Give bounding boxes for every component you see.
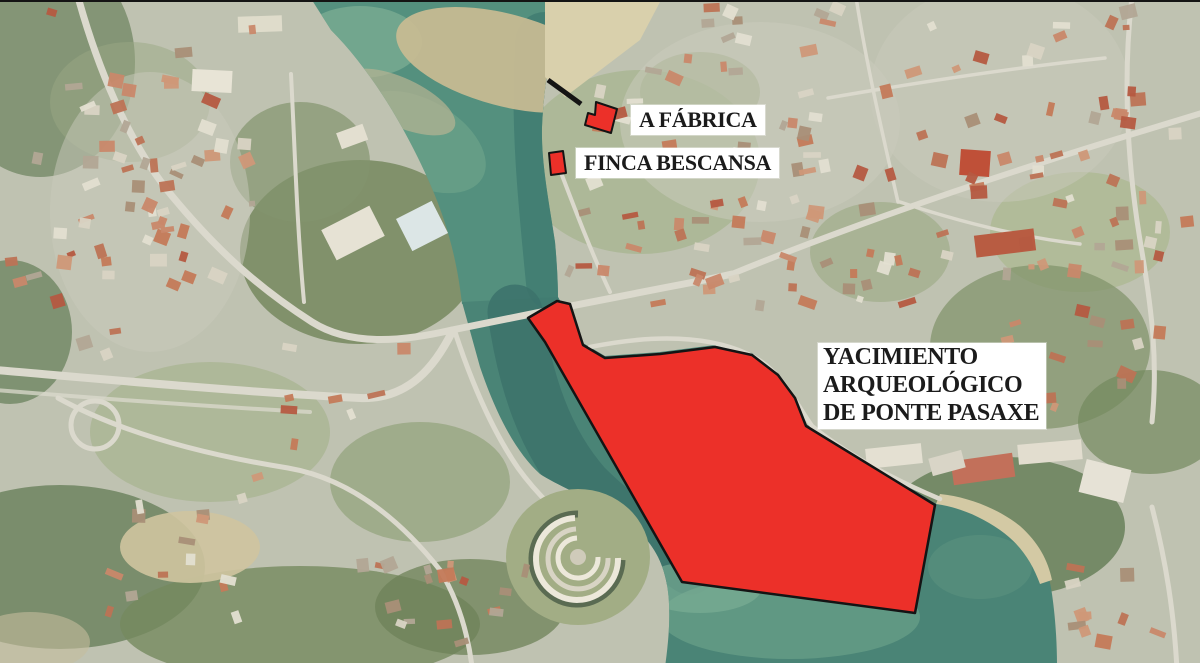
fabrica-label: A FÁBRICA [631,105,765,135]
finca-bescansa-label: FINCA BESCANSA [576,148,779,178]
fabrica-pointer-line [548,80,581,104]
yacimiento-label-line2: ARQUEOLÓGICO [823,371,1039,399]
yacimiento-label: YACIMIENTO ARQUEOLÓGICO DE PONTE PASAXE [818,343,1046,429]
map-canvas: A FÁBRICA FINCA BESCANSA YACIMIENTO ARQU… [0,0,1200,663]
yacimiento-label-line3: DE PONTE PASAXE [823,399,1039,427]
yacimiento-label-line1: YACIMIENTO [823,343,1039,371]
annotation-layer [0,2,1200,663]
fabrica-marker [585,102,617,133]
bescansa-marker [549,151,566,175]
